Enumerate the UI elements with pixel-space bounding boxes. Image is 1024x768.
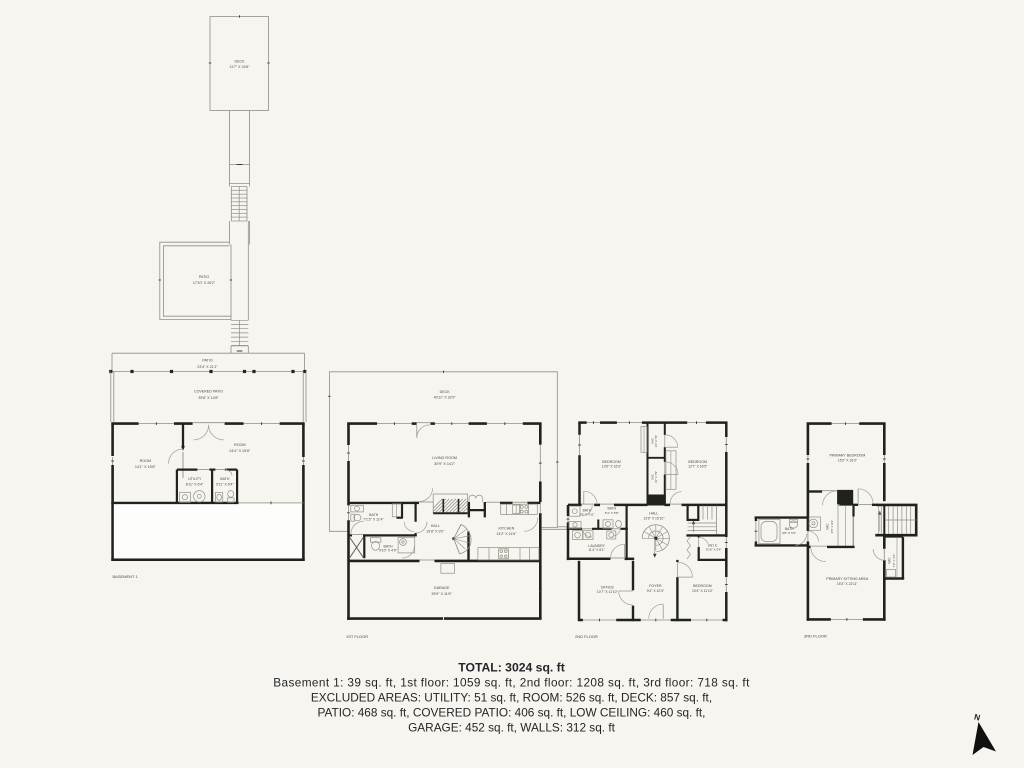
svg-text:HALL: HALL [649, 512, 658, 516]
svg-text:EXCLUDED AREAS: UTILITY: 51 sq: EXCLUDED AREAS: UTILITY: 51 sq. ft, ROOM… [311, 690, 712, 704]
svg-text:15'2" X 16'3": 15'2" X 16'3" [838, 459, 858, 463]
svg-text:5'11" X 6'4": 5'11" X 6'4" [216, 483, 234, 487]
svg-text:BATH: BATH [583, 509, 592, 513]
svg-text:15'8" X 9'2": 15'8" X 9'2" [426, 530, 445, 534]
svg-text:HALL: HALL [431, 524, 440, 528]
svg-text:12'7" X 16'5": 12'7" X 16'5" [688, 465, 708, 469]
svg-text:PATIO: PATIO [202, 359, 212, 363]
svg-text:23'4" X 21'1": 23'4" X 21'1" [197, 365, 218, 369]
svg-text:24'4" X 15'8": 24'4" X 15'8" [229, 449, 251, 453]
svg-text:7'9" X 3'6": 7'9" X 3'6" [892, 554, 896, 568]
svg-text:PATIO: PATIO [199, 275, 209, 279]
svg-text:FOYER: FOYER [649, 584, 662, 588]
svg-text:GARAGE: 452 sq. ft, WALLS: 312: GARAGE: 452 sq. ft, WALLS: 312 sq. ft [408, 720, 615, 734]
svg-text:17'10" X 26'2": 17'10" X 26'2" [193, 281, 216, 285]
svg-text:PRIMARY SITTING AREA: PRIMARY SITTING AREA [826, 577, 869, 581]
svg-text:9'10" X 4'9": 9'10" X 4'9" [379, 549, 398, 553]
svg-text:COVERED PATIO: COVERED PATIO [194, 390, 223, 394]
svg-text:BEDROOM: BEDROOM [602, 460, 621, 464]
svg-text:39'8" X 10'8": 39'8" X 10'8" [198, 396, 219, 400]
svg-text:30'9" X 14'2": 30'9" X 14'2" [434, 462, 456, 466]
svg-text:Basement 1: 39 sq. ft, 1st flo: Basement 1: 39 sq. ft, 1st floor: 1059 s… [273, 675, 750, 689]
svg-text:BATH: BATH [608, 507, 617, 511]
svg-text:PATIO: 468 sq. ft, COVERED PAT: PATIO: 468 sq. ft, COVERED PATIO: 406 sq… [318, 705, 706, 719]
svg-text:BATH: BATH [369, 513, 379, 517]
svg-text:WIC: WIC [650, 474, 654, 480]
svg-text:2ND FLOOR: 2ND FLOOR [575, 634, 598, 639]
svg-text:11'7" X 24'8": 11'7" X 24'8" [229, 65, 250, 69]
svg-text:13'9" X 15'10": 13'9" X 15'10" [643, 516, 665, 520]
svg-text:9'8" X 5'3": 9'8" X 5'3" [782, 531, 796, 535]
svg-text:WIC: WIC [825, 523, 829, 530]
svg-text:BEDROOM: BEDROOM [688, 460, 707, 464]
svg-text:5'4" X 5'8": 5'4" X 5'8" [605, 511, 619, 515]
svg-text:15'3" X 22'11": 15'3" X 22'11" [837, 582, 859, 586]
svg-text:10'4" X 11'10": 10'4" X 11'10" [692, 589, 714, 593]
svg-text:WIC: WIC [887, 557, 891, 564]
svg-text:ROOM: ROOM [234, 443, 245, 447]
svg-text:DECK: DECK [440, 390, 451, 394]
svg-text:5'10" X 5'4": 5'10" X 5'4" [706, 548, 722, 552]
svg-text:ROOM: ROOM [140, 459, 151, 463]
svg-text:13'6" X 16'3": 13'6" X 16'3" [602, 465, 622, 469]
svg-text:3'8" X 4'11": 3'8" X 4'11" [579, 513, 595, 517]
svg-text:10'7" X 11'10": 10'7" X 11'10" [597, 590, 619, 594]
svg-text:7'2.5" X 11'4": 7'2.5" X 11'4" [363, 517, 384, 521]
svg-text:GARAGE: GARAGE [434, 586, 450, 590]
svg-text:BATH: BATH [785, 527, 794, 531]
svg-text:40'11" X 32'9": 40'11" X 32'9" [434, 396, 457, 400]
svg-text:BEDROOM: BEDROOM [693, 584, 712, 588]
svg-text:KITCHEN: KITCHEN [499, 527, 515, 531]
svg-text:11'4" X 6'1": 11'4" X 6'1" [588, 548, 605, 552]
svg-text:BASEMENT 1: BASEMENT 1 [113, 574, 139, 579]
svg-text:39'9" X 11'6": 39'9" X 11'6" [431, 592, 452, 596]
svg-text:TOTAL: 3024 sq. ft: TOTAL: 3024 sq. ft [458, 660, 565, 674]
svg-text:W.I.C.: W.I.C. [709, 543, 718, 547]
svg-text:14'1" X 15'8": 14'1" X 15'8" [135, 465, 157, 469]
svg-text:PRIMARY BEDROOM: PRIMARY BEDROOM [829, 454, 865, 458]
svg-text:1ST FLOOR: 1ST FLOOR [346, 634, 368, 639]
svg-text:OFFICE: OFFICE [601, 586, 615, 590]
svg-text:BATH: BATH [220, 477, 230, 481]
svg-text:4'8" X 9'2": 4'8" X 9'2" [830, 520, 834, 534]
svg-text:UTILITY: UTILITY [188, 477, 202, 481]
svg-text:LAUNDRY: LAUNDRY [588, 544, 605, 548]
svg-text:WIC: WIC [650, 438, 654, 444]
svg-text:LIVING ROOM: LIVING ROOM [432, 456, 457, 460]
svg-text:BATH: BATH [383, 544, 393, 548]
svg-text:DECK: DECK [235, 59, 246, 63]
svg-text:8'11" X 6'4": 8'11" X 6'4" [186, 483, 204, 487]
svg-text:9'4" X 12'3": 9'4" X 12'3" [647, 589, 665, 593]
svg-text:14'2" X 11'6": 14'2" X 11'6" [496, 532, 517, 536]
svg-text:3RD FLOOR: 3RD FLOOR [804, 634, 827, 639]
